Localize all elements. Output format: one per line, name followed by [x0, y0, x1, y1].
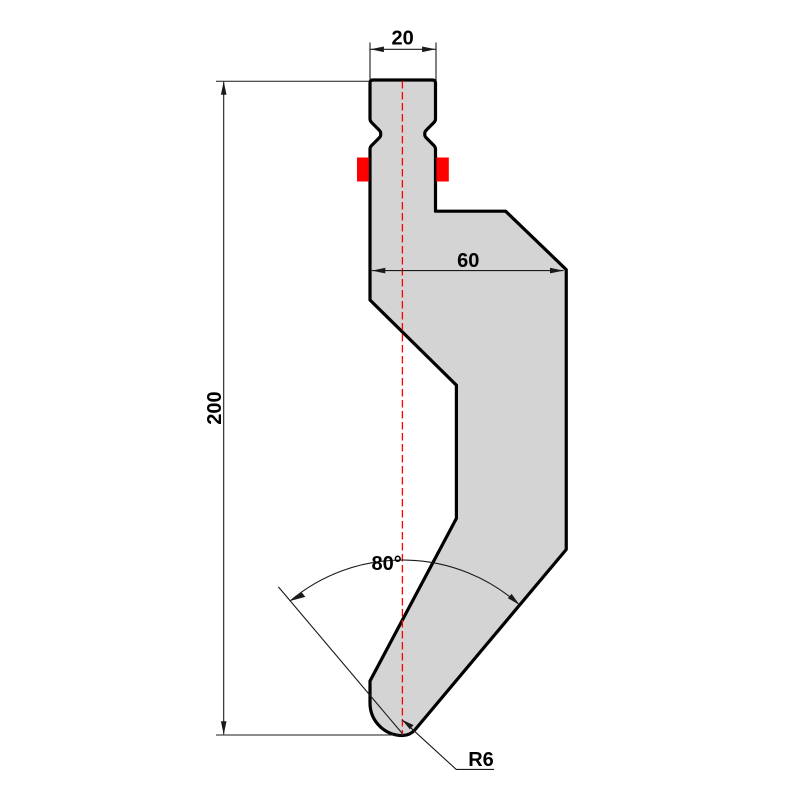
- svg-text:60: 60: [457, 250, 479, 272]
- svg-text:200: 200: [204, 391, 226, 424]
- svg-text:20: 20: [391, 28, 413, 50]
- svg-text:80°: 80°: [371, 553, 401, 575]
- svg-text:R6: R6: [468, 749, 494, 771]
